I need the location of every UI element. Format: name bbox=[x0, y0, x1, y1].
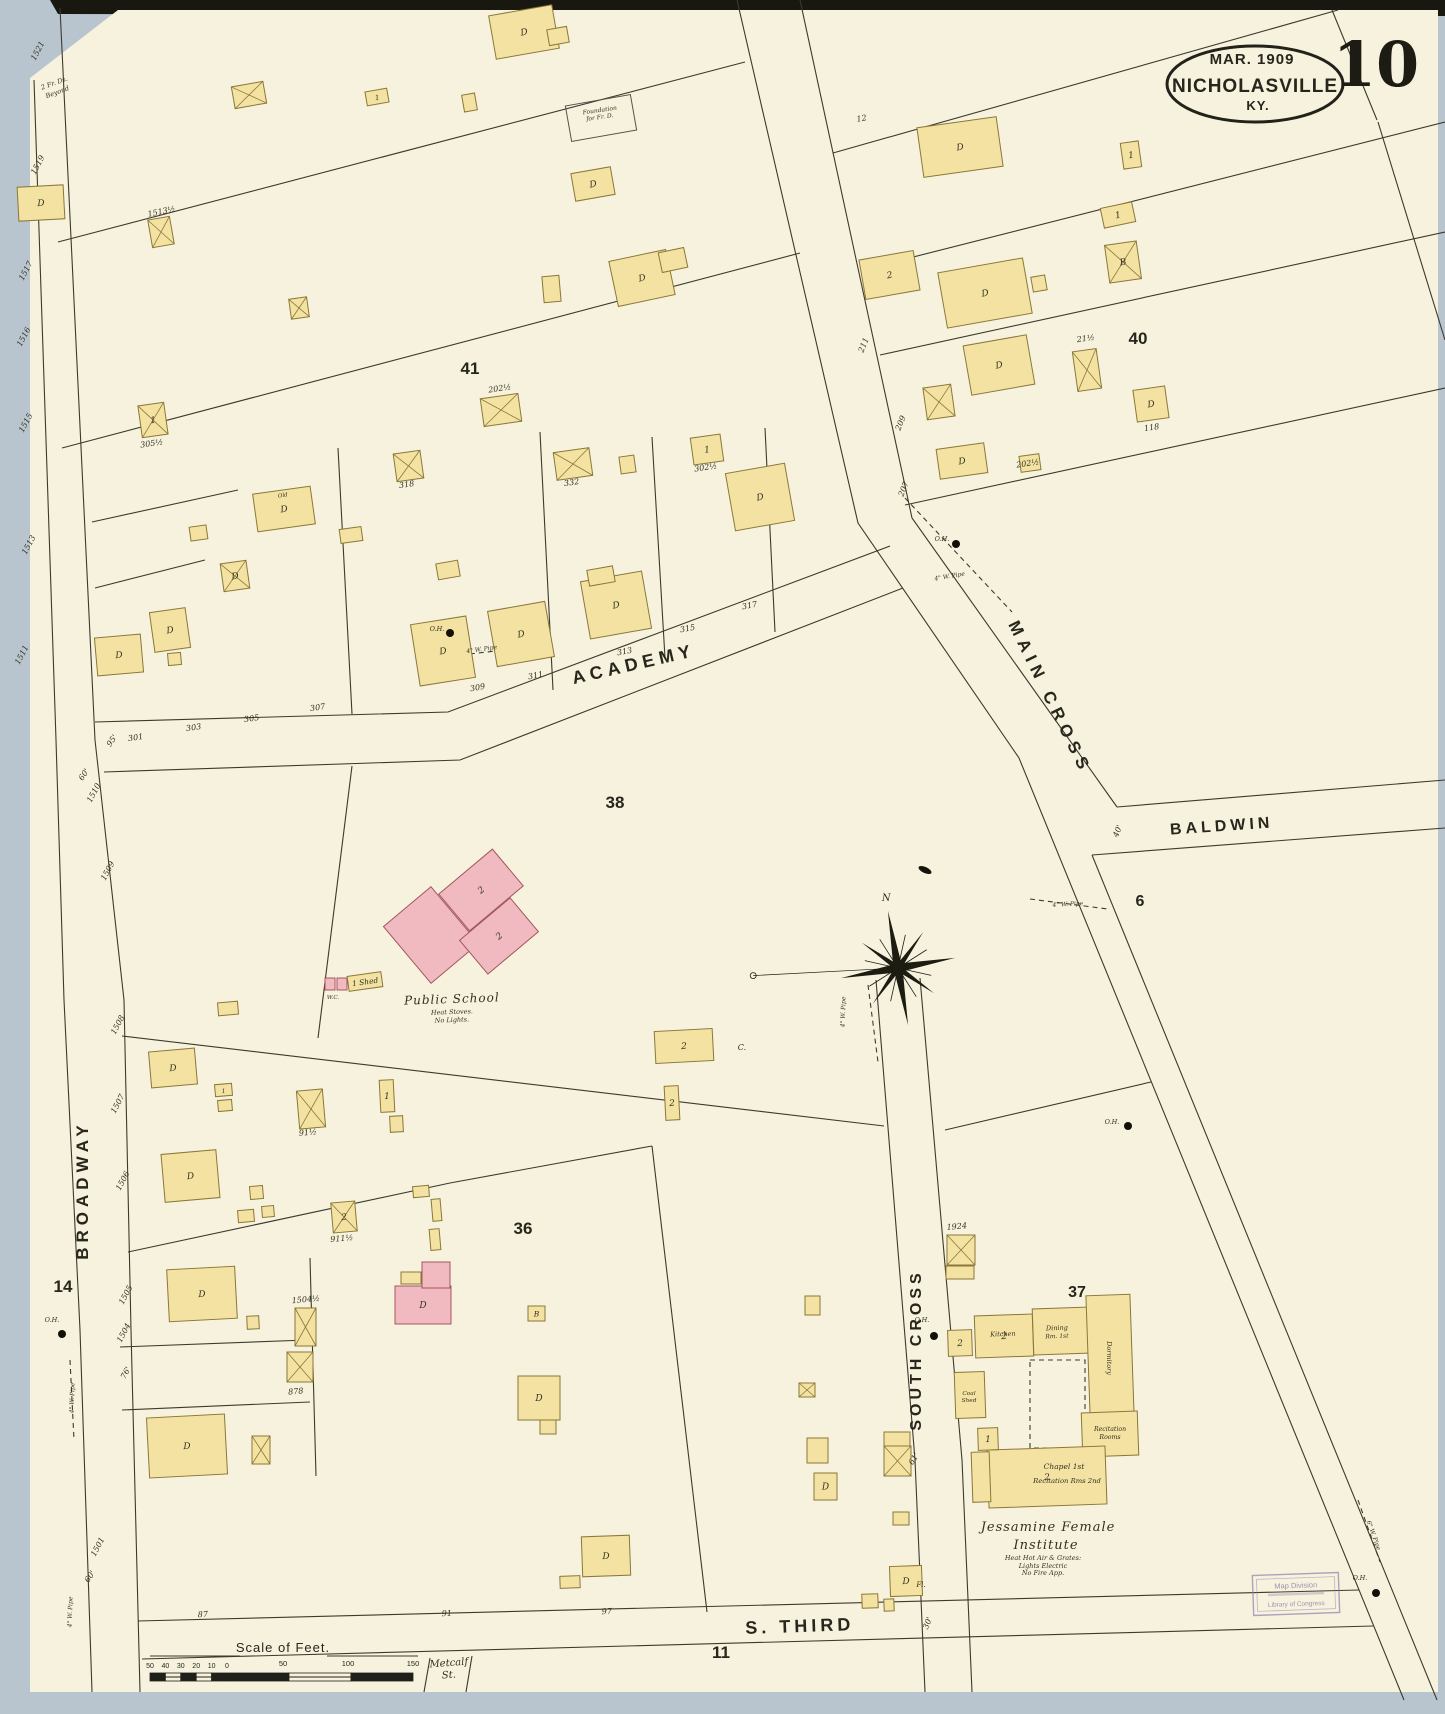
place-label: Rm. 1st bbox=[1044, 1333, 1069, 1341]
building: D bbox=[963, 335, 1035, 395]
building: 1 bbox=[379, 1080, 395, 1113]
building bbox=[971, 1452, 991, 1503]
building bbox=[547, 26, 569, 45]
hydrant-dot bbox=[1124, 1122, 1132, 1130]
building bbox=[168, 652, 182, 665]
place-label: Dining bbox=[1045, 1324, 1068, 1333]
address-number-label: 87 bbox=[198, 1610, 210, 1620]
building: 1 bbox=[138, 402, 168, 437]
scale-tick-label: 20 bbox=[192, 1663, 200, 1670]
scale-tick-label: 40 bbox=[162, 1663, 170, 1670]
building: D bbox=[17, 185, 65, 221]
building: D bbox=[161, 1150, 220, 1203]
building-use-mark: 1 bbox=[221, 1088, 225, 1095]
building: D bbox=[94, 634, 143, 676]
title-city: NICHOLASVILLE bbox=[1172, 76, 1338, 97]
frame-building-footprint bbox=[884, 1599, 894, 1611]
building: D bbox=[518, 1376, 560, 1420]
building bbox=[218, 1099, 233, 1111]
place-label: Kitchen bbox=[989, 1330, 1016, 1339]
building: 1 bbox=[215, 1083, 233, 1096]
building: 2 bbox=[331, 1201, 358, 1233]
building-use-mark: 2 bbox=[668, 1099, 676, 1109]
building bbox=[247, 1316, 260, 1330]
building bbox=[1072, 349, 1101, 392]
title-date: MAR. 1909 bbox=[1210, 51, 1295, 68]
frame-building-footprint bbox=[946, 1266, 974, 1279]
building: D bbox=[220, 560, 250, 591]
address-number-label: O.H. bbox=[915, 1316, 930, 1324]
building: 2 bbox=[948, 1330, 973, 1357]
building bbox=[807, 1438, 828, 1463]
address-number-label: O.H. bbox=[935, 535, 950, 543]
building: D bbox=[146, 1414, 227, 1478]
building bbox=[560, 1576, 580, 1589]
place-label: No Lights. bbox=[434, 1015, 470, 1024]
place-label: No Fire App. bbox=[1021, 1569, 1064, 1577]
building: D bbox=[1133, 386, 1169, 422]
street-name-label: BROADWAY bbox=[73, 1120, 92, 1260]
building-use-mark: D bbox=[186, 1172, 195, 1183]
building bbox=[923, 384, 955, 420]
frame-building-footprint bbox=[249, 1185, 263, 1199]
sheet-number: 10 bbox=[1333, 28, 1419, 101]
building bbox=[422, 1262, 450, 1288]
hydrant-dot bbox=[446, 629, 454, 637]
scale-tick-label: 150 bbox=[407, 1659, 420, 1668]
building-use-mark: D bbox=[197, 1290, 206, 1300]
building-use-mark: D bbox=[821, 1483, 829, 1493]
building bbox=[619, 455, 636, 474]
block-number-label: 40 bbox=[1129, 329, 1148, 348]
building-use-mark: D bbox=[165, 626, 175, 637]
address-number-label: O.H. bbox=[430, 625, 445, 633]
frame-building-footprint bbox=[431, 1199, 442, 1222]
address-number-label: 878 bbox=[288, 1386, 304, 1396]
frame-building-footprint bbox=[805, 1296, 820, 1315]
building bbox=[189, 525, 208, 541]
frame-building-footprint bbox=[893, 1512, 909, 1525]
stamp-line-1: Map Division bbox=[1274, 1580, 1317, 1590]
address-number-label: 1924 bbox=[946, 1221, 967, 1232]
building-use-mark: D bbox=[957, 457, 967, 468]
building-use-mark: D bbox=[955, 143, 965, 154]
block-number-label: 38 bbox=[606, 793, 625, 812]
building-use-mark: D bbox=[994, 360, 1004, 371]
building-use-mark: D bbox=[611, 600, 621, 611]
place-label: St. bbox=[441, 1670, 456, 1682]
block-number-label: 14 bbox=[54, 1277, 73, 1296]
building bbox=[431, 1199, 442, 1222]
scale-bar-title: Scale of Feet. bbox=[236, 1640, 330, 1655]
building-use-mark: 1 bbox=[985, 1435, 991, 1445]
building bbox=[462, 93, 478, 112]
building-use-mark: D bbox=[182, 1442, 191, 1452]
building bbox=[480, 393, 522, 426]
building: D bbox=[917, 117, 1003, 178]
building bbox=[287, 1352, 313, 1382]
address-number-label: 4" W. Pipe bbox=[839, 996, 847, 1028]
hydrant-dot bbox=[58, 1330, 66, 1338]
building-use-mark: D bbox=[516, 629, 526, 640]
building bbox=[148, 216, 175, 247]
building: 1 bbox=[1120, 141, 1141, 169]
building-use-mark: B bbox=[533, 1310, 540, 1319]
frame-building-footprint bbox=[217, 1001, 238, 1016]
building-use-mark: D bbox=[279, 505, 289, 516]
building bbox=[238, 1209, 255, 1222]
building: D bbox=[936, 443, 988, 479]
building bbox=[289, 297, 310, 319]
place-label: Institute bbox=[1012, 1538, 1078, 1553]
building bbox=[337, 978, 347, 990]
building-use-mark: D bbox=[114, 651, 123, 662]
frame-building-footprint bbox=[542, 275, 561, 302]
building bbox=[553, 448, 593, 481]
building bbox=[805, 1296, 820, 1315]
place-label: Coal bbox=[962, 1391, 975, 1397]
building-use-mark: 2 bbox=[956, 1339, 963, 1349]
street-name-label: S. THIRD bbox=[745, 1614, 855, 1638]
frame-building-footprint bbox=[1031, 275, 1047, 292]
building bbox=[1031, 275, 1047, 292]
block-number-label: 37 bbox=[1068, 1284, 1086, 1301]
block-number-label: 41 bbox=[461, 359, 480, 378]
building bbox=[862, 1594, 878, 1609]
brick-building-footprint bbox=[337, 978, 347, 990]
frame-building-footprint bbox=[436, 560, 460, 580]
building bbox=[296, 1089, 325, 1129]
building bbox=[339, 527, 363, 544]
building bbox=[540, 1420, 556, 1434]
title-state: KY. bbox=[1246, 98, 1269, 113]
scale-tick-label: 0 bbox=[225, 1663, 229, 1670]
sanborn-map-sheet: D1D1DDD21BDDDD1DDDD1DDDD221 ShedD1122D2D… bbox=[0, 0, 1445, 1714]
compass-north-label: N bbox=[881, 893, 892, 904]
place-label: W.C. bbox=[327, 995, 339, 1001]
place-label: Rooms bbox=[1098, 1434, 1120, 1441]
building-use-mark: D bbox=[901, 1577, 910, 1587]
scale-tick-label: 10 bbox=[208, 1663, 216, 1670]
building: D bbox=[167, 1266, 238, 1321]
frame-building-footprint bbox=[547, 26, 569, 45]
frame-building-footprint bbox=[218, 1099, 233, 1111]
building-use-mark: D bbox=[36, 199, 45, 209]
building-use-mark: D bbox=[168, 1064, 177, 1075]
frame-building-footprint bbox=[247, 1316, 260, 1330]
building: D bbox=[814, 1473, 837, 1500]
frame-building-footprint bbox=[390, 1116, 404, 1133]
building: D bbox=[149, 608, 190, 653]
building bbox=[884, 1599, 894, 1611]
building-use-mark: D bbox=[418, 1301, 426, 1311]
building: D bbox=[725, 463, 794, 531]
building bbox=[947, 1235, 975, 1265]
place-label: Chapel 1st bbox=[1044, 1462, 1086, 1471]
building bbox=[390, 1116, 404, 1133]
building bbox=[262, 1205, 275, 1217]
address-number-label: O.H. bbox=[1105, 1118, 1120, 1126]
building bbox=[542, 275, 561, 302]
frame-building-footprint bbox=[619, 455, 636, 474]
frame-building-footprint bbox=[807, 1438, 828, 1463]
place-label: Jessamine Female bbox=[978, 1520, 1116, 1535]
building-use-mark: 2 bbox=[340, 1213, 348, 1224]
frame-building-footprint bbox=[413, 1185, 430, 1197]
building bbox=[401, 1272, 421, 1284]
building bbox=[217, 1001, 238, 1016]
place-label: Heat Hot Air & Grates: bbox=[1004, 1554, 1081, 1562]
block-number-label: 36 bbox=[514, 1219, 533, 1238]
building bbox=[436, 560, 460, 580]
frame-building-footprint bbox=[401, 1272, 421, 1284]
building-use-mark: D bbox=[230, 572, 240, 583]
building bbox=[884, 1432, 910, 1446]
address-number-label: 12 bbox=[856, 113, 868, 124]
address-number-label: O.H. bbox=[45, 1316, 60, 1324]
frame-building-footprint bbox=[168, 652, 182, 665]
frame-building-footprint bbox=[262, 1205, 275, 1217]
address-number-label: 97 bbox=[602, 1607, 614, 1617]
building bbox=[893, 1512, 909, 1525]
building-use-mark: D bbox=[755, 492, 765, 503]
brick-building-footprint bbox=[325, 978, 335, 990]
building: D bbox=[149, 1048, 198, 1088]
building bbox=[252, 1436, 270, 1464]
address-number-label: 91½ bbox=[298, 1127, 317, 1138]
frame-building-footprint bbox=[189, 525, 208, 541]
street-name-label: SOUTH CROSS bbox=[908, 1269, 925, 1430]
frame-building-footprint bbox=[462, 93, 478, 112]
compass-hub-center bbox=[896, 966, 900, 970]
hydrant-dot bbox=[1372, 1589, 1380, 1597]
building: D bbox=[395, 1286, 451, 1324]
building-use-mark: D bbox=[588, 179, 598, 190]
frame-building-footprint bbox=[560, 1576, 580, 1589]
scale-tick-label: 50 bbox=[279, 1659, 287, 1668]
building-use-mark: 1 bbox=[384, 1092, 390, 1102]
building-use-mark: D bbox=[980, 288, 990, 299]
brick-building-footprint bbox=[422, 1262, 450, 1288]
building-use-mark: D bbox=[438, 646, 448, 657]
building: 1 bbox=[690, 434, 723, 465]
place-label: Dormitory bbox=[1105, 1340, 1113, 1375]
place-label: Fl. bbox=[915, 1581, 925, 1589]
frame-building-footprint bbox=[884, 1432, 910, 1446]
frame-building-footprint bbox=[429, 1229, 441, 1251]
place-label: C. bbox=[738, 1043, 746, 1052]
scale-tick-label: 30 bbox=[177, 1663, 185, 1670]
address-number-label: 4" W. Pipe bbox=[68, 1382, 76, 1414]
address-number-label: 91 bbox=[442, 1609, 453, 1619]
building-use-mark: D bbox=[1146, 400, 1156, 411]
building bbox=[799, 1383, 815, 1397]
building bbox=[325, 978, 335, 990]
hydrant-dot bbox=[952, 540, 960, 548]
building-use-mark: D bbox=[601, 1552, 610, 1562]
block-number-label: 11 bbox=[712, 1643, 730, 1662]
scale-tick-label: 50 bbox=[146, 1663, 154, 1670]
frame-building-footprint bbox=[862, 1594, 878, 1609]
building bbox=[429, 1229, 441, 1251]
address-number-label: O.H. bbox=[1353, 1574, 1368, 1582]
frame-building-footprint bbox=[971, 1452, 991, 1503]
building bbox=[393, 450, 424, 481]
title-oval: MAR. 1909 NICHOLASVILLE KY. bbox=[1167, 46, 1343, 122]
place-label: Shed bbox=[962, 1398, 977, 1404]
building: D bbox=[488, 601, 555, 666]
frame-building-footprint bbox=[540, 1420, 556, 1434]
hydrant-dot bbox=[930, 1332, 938, 1340]
building bbox=[295, 1308, 316, 1346]
place-label: Recitation bbox=[1093, 1426, 1126, 1433]
frame-building-footprint bbox=[339, 527, 363, 544]
building bbox=[946, 1266, 974, 1279]
building: 2 bbox=[654, 1029, 714, 1064]
building bbox=[249, 1185, 263, 1199]
building: 2 bbox=[664, 1086, 680, 1121]
paper-sheet bbox=[30, 10, 1438, 1692]
building: B bbox=[528, 1306, 545, 1321]
frame-building-footprint bbox=[238, 1209, 255, 1222]
building bbox=[413, 1185, 430, 1197]
map-canvas: D1D1DDD21BDDDD1DDDD1DDDD221 ShedD1122D2D… bbox=[0, 0, 1445, 1714]
scale-tick-label: 100 bbox=[342, 1659, 355, 1668]
building: 1 bbox=[978, 1428, 999, 1451]
building: D bbox=[581, 1535, 630, 1577]
building-use-mark: D bbox=[534, 1394, 542, 1404]
place-label: Recitation Rms 2nd bbox=[1032, 1477, 1101, 1485]
building-use-mark: D bbox=[519, 27, 529, 38]
address-number-label: 4" W. Pipe bbox=[66, 1596, 74, 1628]
building-use-mark: 2 bbox=[680, 1042, 688, 1052]
building: B bbox=[1105, 241, 1142, 283]
block-number-label: 6 bbox=[1136, 893, 1145, 910]
